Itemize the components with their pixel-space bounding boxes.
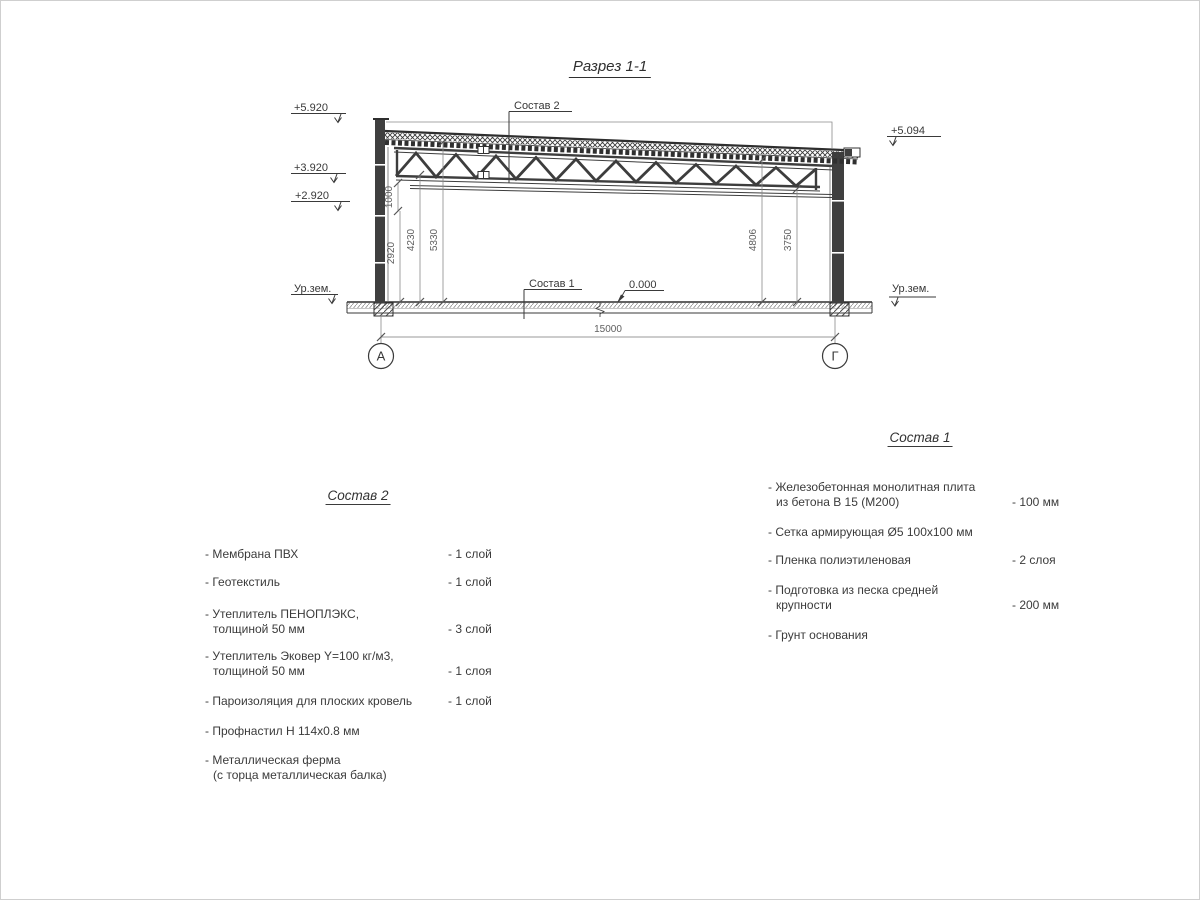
drawing-sheet: { "title": "Разрез 1-1", "drawing": { "l…: [0, 0, 1200, 900]
elev-2920: +2.920: [295, 190, 329, 202]
elev-5094: +5.094: [891, 125, 925, 137]
list-item: - Мембрана ПВХ - 1 слой: [205, 547, 298, 562]
dim-4230: 4230: [406, 228, 417, 251]
dim-1000: 1000: [384, 185, 395, 208]
svg-text:А: А: [377, 349, 386, 364]
sostav2-header: Состав 2: [326, 488, 391, 505]
dim-3750: 3750: [783, 228, 794, 251]
axis-marker-a: А: [369, 344, 394, 369]
elev-3920: +3.920: [294, 162, 328, 174]
axis-marker-g: Г: [823, 344, 848, 369]
list-item: - Утеплитель ПЕНОПЛЭКС, толщиной 50 мм -…: [205, 607, 359, 637]
callout-sostav2: Состав 2: [514, 100, 560, 112]
wall-left: [373, 119, 389, 303]
callout-sostav1: Состав 1: [529, 278, 575, 290]
dim-15000: 15000: [594, 324, 622, 335]
list-item: - Металлическая ферма (с торца металличе…: [205, 753, 387, 783]
span-dimension: 15000: [377, 315, 839, 343]
callout-zero-level: 0.000: [629, 279, 657, 291]
dim-2920: 2920: [386, 241, 397, 264]
svg-text:Г: Г: [831, 349, 838, 364]
sostav1-header: Состав 1: [888, 430, 953, 447]
elev-5920: +5.920: [294, 102, 328, 114]
footing-left: [374, 303, 393, 316]
floor-slab: [347, 302, 872, 317]
gusset-plates: [478, 147, 489, 179]
section-drawing: 1000 2920 4230 5330 4806 3750 15000 А Г …: [0, 0, 1200, 430]
list-item: - Железобетонная монолитная плита из бет…: [768, 480, 975, 510]
dim-4806: 4806: [748, 228, 759, 251]
list-item: - Грунт основания: [768, 628, 868, 643]
callouts: Состав 2 Состав 1 0.000: [509, 100, 664, 319]
list-item: - Геотекстиль - 1 слой: [205, 575, 280, 590]
footing-right: [830, 303, 849, 316]
list-item: - Пленка полиэтиленовая - 2 слоя: [768, 553, 911, 568]
list-item: - Утеплитель Эковер Y=100 кг/м3, толщино…: [205, 649, 394, 679]
list-item: - Пароизоляция для плоских кровель - 1 с…: [205, 694, 412, 709]
ground-level-right: Ур.зем.: [892, 283, 929, 295]
list-item: - Сетка армирующая Ø5 100x100 мм: [768, 525, 973, 540]
list-item: - Подготовка из песка средней крупности …: [768, 583, 938, 613]
ground-level-left: Ур.зем.: [294, 283, 331, 295]
list-item: - Профнастил Н 114x0.8 мм: [205, 724, 360, 739]
dim-5330: 5330: [429, 228, 440, 251]
wall-right: [830, 152, 844, 303]
